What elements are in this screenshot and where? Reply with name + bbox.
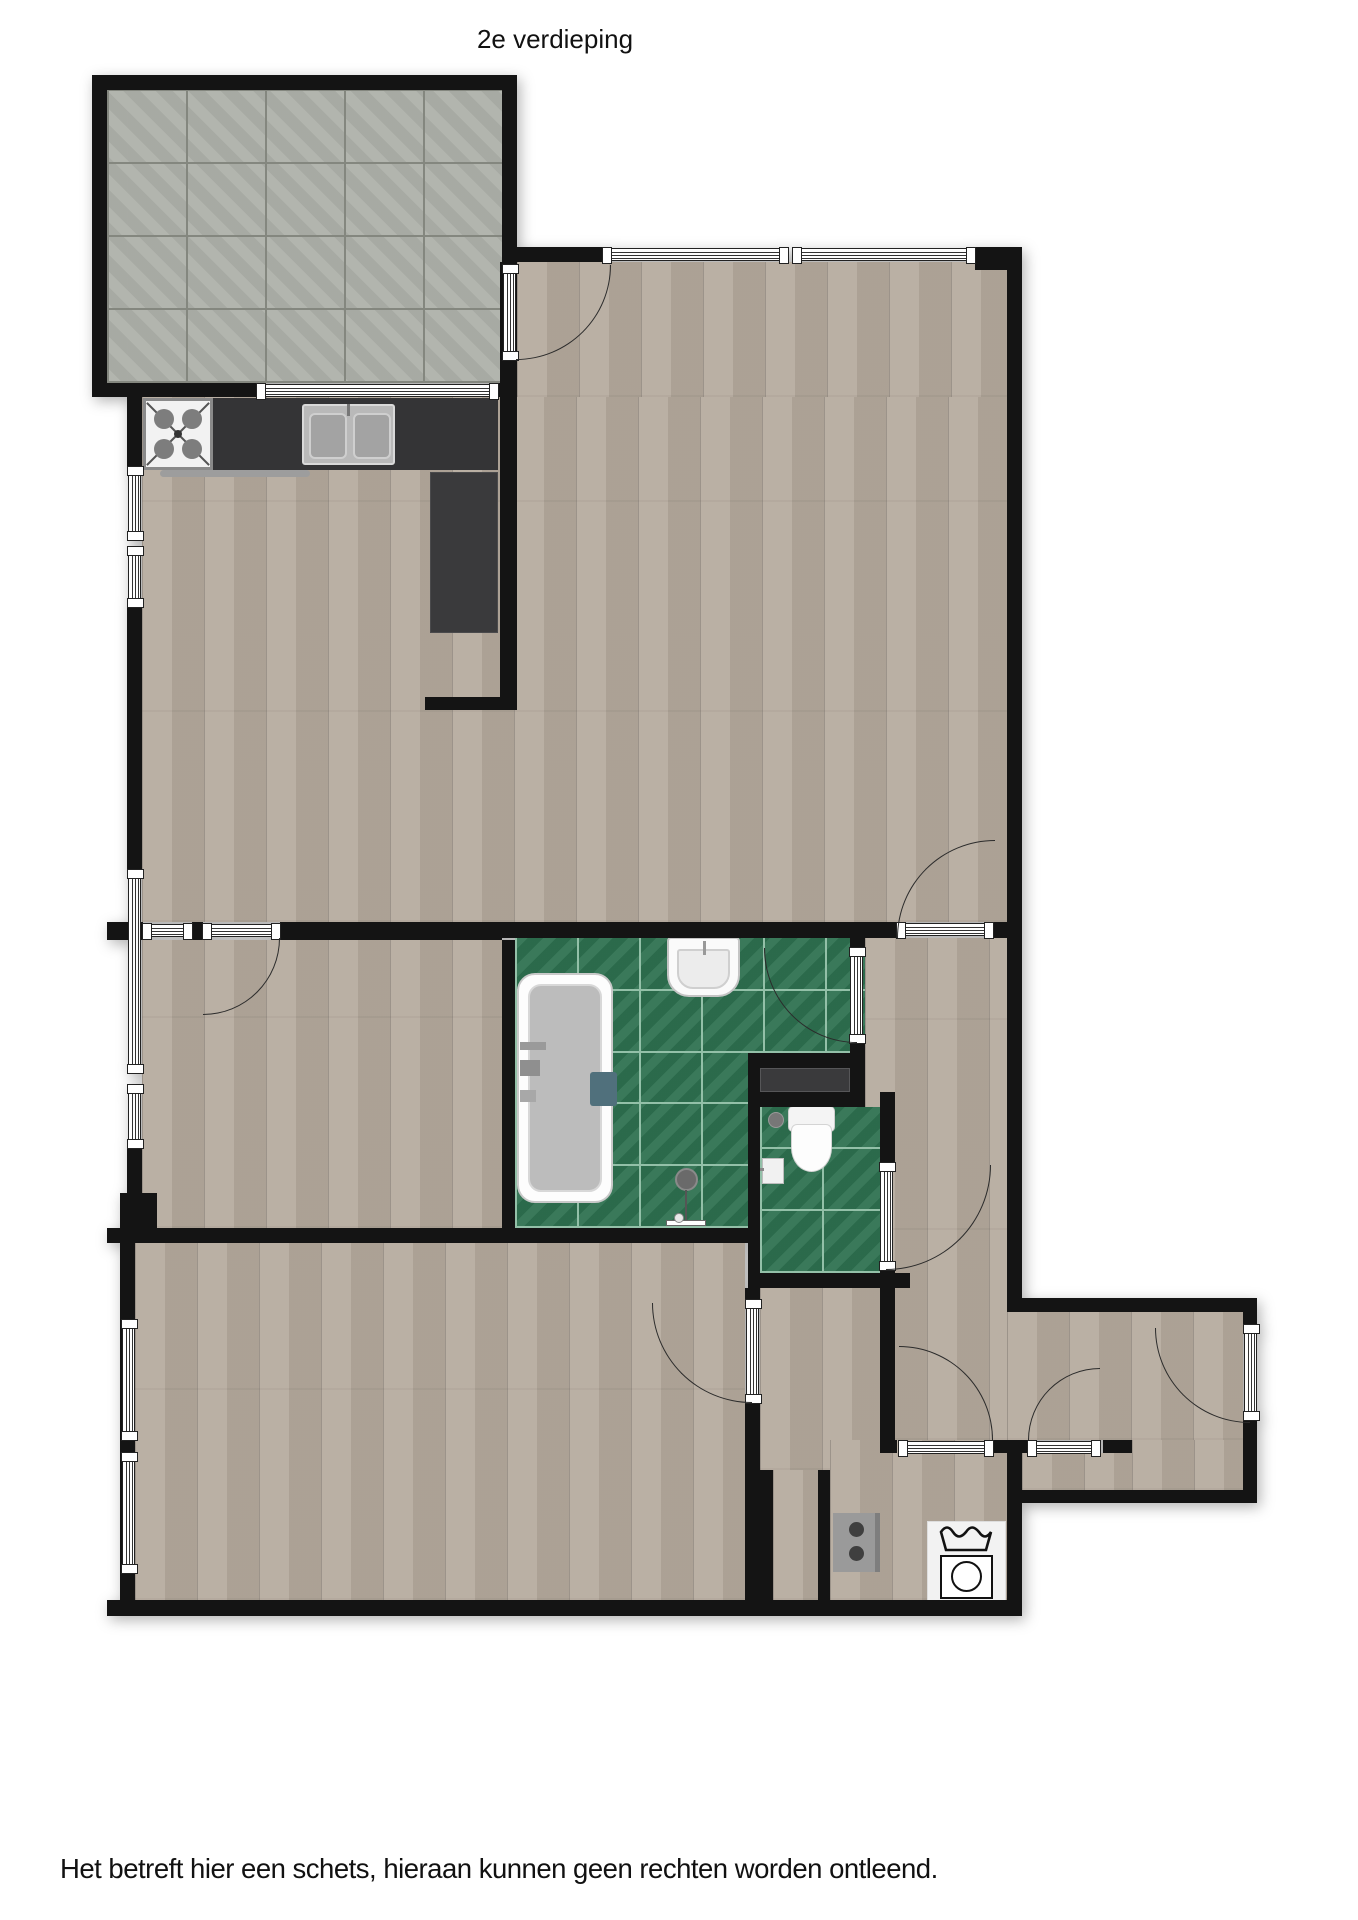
bedroom-bottom-window — [122, 1320, 135, 1440]
bedroom-left-window — [128, 870, 141, 1073]
hall-left-wall — [745, 1403, 760, 1616]
tap-icon — [347, 404, 350, 416]
bottom-exterior-wall — [107, 1600, 1022, 1616]
living-window — [793, 248, 975, 261]
toilet-bottom-wall — [748, 1273, 910, 1288]
bath-faucet-icon — [520, 1090, 536, 1102]
toilet-right-wall — [880, 1270, 895, 1453]
duct-niche-floor — [773, 1470, 818, 1600]
laundry-right-wall — [1007, 1440, 1022, 1616]
toilet-right-wall — [880, 1092, 895, 1163]
toilet-left-wall — [748, 1068, 760, 1288]
wing-bottom-wall — [1022, 1490, 1257, 1503]
toilet-shelf — [760, 1068, 850, 1092]
bathroom-left-wall — [502, 940, 515, 1228]
living-top-wall — [517, 247, 603, 262]
toilet-top-wall — [760, 1092, 865, 1107]
bath-accessory — [590, 1072, 617, 1106]
vestibule-floor — [1022, 1453, 1132, 1490]
balcony-door-leaf — [503, 265, 516, 360]
washing-machine-icon — [928, 1522, 1005, 1605]
living-window — [603, 248, 788, 261]
bathtub-icon — [517, 973, 613, 1203]
bedroom-left-floor — [142, 940, 502, 1228]
disclaimer-text: Het betreft hier een schets, hieraan kun… — [60, 1853, 938, 1885]
stove-icon — [143, 398, 213, 470]
terrace-left-wall — [92, 75, 107, 397]
kitchen-side-window — [128, 467, 141, 540]
washbasin-icon — [667, 937, 740, 997]
shower-icon — [660, 1168, 712, 1230]
bedroom-bottom-floor — [135, 1243, 745, 1600]
left-exterior-wall — [127, 607, 142, 870]
divider-wall — [280, 922, 502, 940]
boiler-icon — [833, 1513, 880, 1572]
floorplan — [0, 0, 1358, 1920]
divider-wall — [993, 922, 1022, 938]
middle-band-bottom-wall — [107, 1228, 748, 1243]
bedroom-left-window — [128, 1085, 141, 1148]
duct-niche-wall — [760, 1470, 773, 1600]
bedroom-left-top-window — [143, 924, 192, 937]
corner-sink-icon — [762, 1158, 784, 1184]
tall-cabinet — [430, 472, 498, 633]
right-exterior-wall — [1007, 262, 1022, 1312]
terrace-floor — [107, 90, 502, 383]
kitchen-side-window — [128, 547, 141, 607]
laundry-symbol-icon — [938, 1524, 994, 1552]
laundry-top-wall — [1103, 1440, 1132, 1453]
left-exterior-wall — [127, 1148, 142, 1193]
bath-faucet-icon — [520, 1042, 546, 1050]
bath-faucet-icon — [520, 1060, 540, 1076]
laundry-top-wall — [880, 1440, 897, 1453]
toilet-icon — [788, 1106, 835, 1174]
laundry-door-leaf — [899, 1441, 993, 1454]
bedroom-left-door-leaf — [203, 924, 280, 937]
floor-drain-icon — [768, 1112, 784, 1128]
kitchen-nook-stub-wall — [425, 697, 517, 710]
kitchen-sink-icon — [302, 404, 395, 465]
terrace-bottom-wall — [92, 383, 257, 397]
terrace-right-wall — [502, 90, 517, 262]
counter-handle — [160, 470, 310, 477]
vestibule-door-leaf — [1028, 1441, 1100, 1454]
tap-icon — [703, 941, 706, 955]
left-exterior-wall — [127, 395, 142, 467]
kitchen-window — [257, 384, 498, 397]
wing-top-wall — [1007, 1298, 1257, 1312]
shelf-enclosure-wall — [748, 1053, 865, 1068]
divider-wall — [865, 922, 897, 938]
floorplan-page: 2e verdieping — [0, 0, 1358, 1920]
wing-lower-floor — [1132, 1440, 1243, 1490]
terrace-top-wall — [92, 75, 517, 90]
duct-niche-wall — [818, 1470, 830, 1600]
bathroom-top-wall — [502, 922, 865, 938]
bedroom-bottom-window — [122, 1453, 135, 1573]
